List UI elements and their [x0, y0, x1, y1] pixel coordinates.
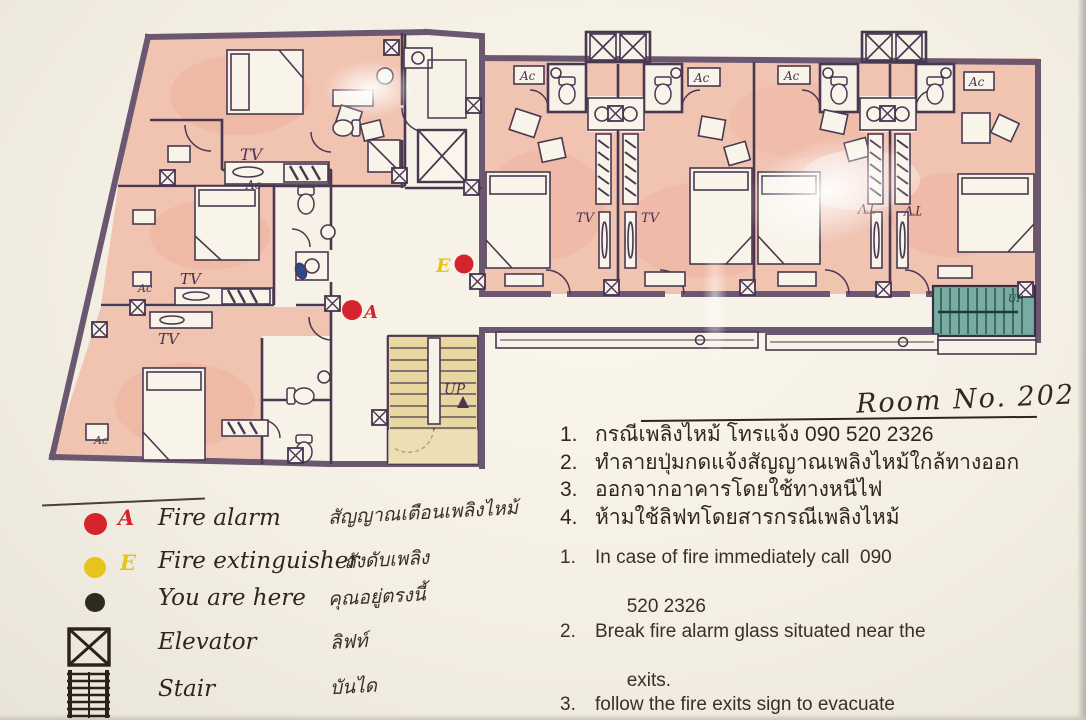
thai-instruction-item: 1. กรณีเพลิงไหม้ โทรแจ้ง 090 520 2326 — [560, 421, 1070, 449]
bed — [690, 168, 752, 264]
legend-label-th: ถังดับเพลิง — [343, 543, 430, 577]
svg-text:Ac: Ac — [783, 69, 800, 83]
item-number: 2. — [560, 620, 595, 694]
legend-item-elevator: Elevator ลิฟท์ — [0, 622, 540, 668]
bed — [958, 174, 1034, 252]
legend-letter-a: A — [118, 505, 134, 530]
english-instruction-item: 3. follow the fire exits sign to evacuat… — [560, 693, 1070, 720]
item-text: Break fire alarm glass situated near the… — [595, 620, 1070, 694]
item-text: In case of fire immediately call 090 520… — [595, 546, 1070, 620]
item-text: กรณีเพลิงไหม้ โทรแจ้ง 090 520 2326 — [595, 421, 1070, 449]
svg-text:TV: TV — [576, 211, 596, 226]
thai-instructions: 1. กรณีเพลิงไหม้ โทรแจ้ง 090 520 2326 2.… — [560, 421, 1070, 531]
thai-instruction-item: 4. ห้ามใช้ลิฟทโดยสารกรณีเพลิงไหม้ — [560, 504, 1070, 532]
you-are-here-dot-icon — [85, 593, 105, 612]
photo-frame: TV TV TV TV TV TV TV Ac Ac Ac Ac Ac Ac A… — [0, 0, 1086, 720]
item-number: 2. — [560, 449, 595, 477]
item-text: follow the fire exits sign to evacuate t… — [595, 693, 1070, 720]
thai-instruction-item: 3. ออกจากอาคารโดยใช้ทางหนีไฟ — [560, 476, 1070, 504]
photo-edge — [1077, 0, 1086, 720]
legend-letter-e: E — [120, 550, 136, 575]
item-text: ออกจากอาคารโดยใช้ทางหนีไฟ — [595, 476, 1070, 504]
stair-icon — [64, 668, 114, 720]
item-number: 1. — [560, 546, 595, 620]
legend-label-th: ลิฟท์ — [329, 626, 368, 658]
item-number: 3. — [560, 476, 595, 504]
english-instructions: 1. In case of fire immediately call 090 … — [560, 546, 1070, 720]
legend-label-en: Fire extinguisher — [158, 548, 359, 574]
svg-text:TV: TV — [641, 211, 661, 226]
legend-label-th: สัญญาณเตือนเพลิงไหม้ — [327, 493, 518, 533]
fire-alarm-dot-icon — [84, 513, 107, 535]
thai-instruction-item: 2. ทำลายปุ่มกดแจ้งสัญญาณเพลิงไหม้ใกล้ทาง… — [560, 449, 1070, 477]
legend-item-fire-alarm: A Fire alarm สัญญาณเตือนเพลิงไหม้ — [0, 498, 540, 544]
svg-text:UP: UP — [1008, 294, 1023, 305]
english-instruction-item: 1. In case of fire immediately call 090 … — [560, 546, 1070, 620]
legend-item-stair: Stair บันได — [0, 666, 540, 712]
item-number: 4. — [560, 504, 595, 532]
svg-text:Ac: Ac — [968, 75, 985, 89]
svg-text:Ac: Ac — [693, 71, 710, 85]
legend-item-you-are-here: You are here คุณอยู่ตรงนี้ — [0, 580, 540, 626]
legend-label-en: Elevator — [158, 629, 257, 655]
item-number: 1. — [560, 421, 595, 449]
svg-text:TV: TV — [856, 200, 876, 215]
bed — [758, 172, 820, 264]
fire-extinguisher-dot-icon — [84, 557, 106, 578]
svg-text:TV: TV — [902, 202, 922, 217]
legend-label-en: You are here — [158, 585, 306, 611]
legend-label-th: คุณอยู่ตรงนี้ — [327, 579, 426, 614]
legend-label-en: Fire alarm — [158, 505, 281, 531]
legend-label-th: บันได — [329, 671, 377, 703]
item-number: 3. — [560, 693, 595, 720]
english-instruction-item: 2. Break fire alarm glass situated near … — [560, 620, 1070, 694]
legend-label-en: Stair — [158, 676, 215, 702]
legend: A Fire alarm สัญญาณเตือนเพลิงไหม้ E Fire… — [0, 0, 540, 720]
item-text: ทำลายปุ่มกดแจ้งสัญญาณเพลิงไหม้ใกล้ทางออก — [595, 449, 1070, 477]
item-text: ห้ามใช้ลิฟทโดยสารกรณีเพลิงไหม้ — [595, 504, 1070, 532]
